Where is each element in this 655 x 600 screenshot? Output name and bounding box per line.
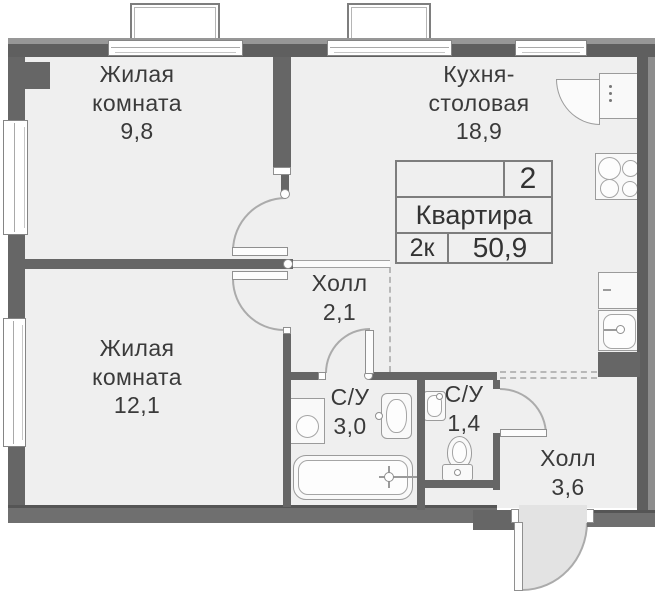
apartment-title: Квартира <box>397 198 551 232</box>
door-jamb <box>511 509 519 523</box>
wall-bottom-right <box>587 510 655 527</box>
total-area: 50,9 <box>449 234 551 262</box>
burner <box>598 157 621 180</box>
burner <box>622 181 638 197</box>
rooms-count: 2 <box>503 162 551 196</box>
wall-bath1-left <box>283 330 291 507</box>
wall-living1-right <box>273 57 291 168</box>
door-leaf <box>232 271 288 280</box>
info-card-empty-cell <box>397 162 503 196</box>
window-left-upper <box>3 120 28 235</box>
room-label-living2: Жилая комната 12,1 <box>52 334 222 420</box>
wall-bath1-top-right <box>369 372 497 380</box>
door-hinge-node <box>280 189 290 199</box>
door-hinge-node <box>283 259 293 269</box>
wall-bath-divider <box>417 372 425 510</box>
door-leaf <box>365 330 374 374</box>
room-area: 1,4 <box>425 409 503 438</box>
room-area: 9,8 <box>52 117 222 146</box>
room-label-hall: Холл 2,1 <box>283 269 396 326</box>
room-name: С/У <box>331 384 370 410</box>
fridge-handle-dot <box>609 99 612 102</box>
fridge-icon <box>599 73 640 119</box>
window-left-lower <box>3 318 26 447</box>
pilaster <box>25 62 50 89</box>
burner <box>600 179 619 198</box>
room-label-bath1: С/У 3,0 <box>310 383 390 440</box>
fridge-handle-dot <box>609 85 612 88</box>
floor-plan: Жилая комната 9,8 Кухня-столовая 18,9 Хо… <box>0 0 655 600</box>
door-jamb <box>273 167 291 175</box>
window-top-left <box>108 40 243 56</box>
bay-window-1 <box>130 3 220 43</box>
zone-divider-dashed <box>500 371 597 373</box>
bathtub-drain <box>384 472 394 482</box>
room-name: Холл <box>312 270 368 296</box>
wall-bath2-bottom <box>425 480 500 488</box>
room-label-bath2: С/У 1,4 <box>425 380 503 437</box>
window-top-right <box>515 40 587 56</box>
info-card-row-area: 2к 50,9 <box>397 232 551 262</box>
door-jamb <box>318 372 326 380</box>
room-area: 3,0 <box>310 412 390 441</box>
door-leaf <box>232 247 288 256</box>
toilet-bowl <box>452 441 467 463</box>
info-card-row-title: Квартира <box>397 196 551 232</box>
layout-code: 2к <box>397 234 449 262</box>
bay-window-2 <box>347 3 431 43</box>
entrance-door-swing <box>522 522 588 591</box>
info-card-row-top: 2 <box>397 162 551 196</box>
zone-divider-dashed <box>500 377 597 379</box>
door-jamb <box>283 327 291 334</box>
room-area: 12,1 <box>52 391 222 420</box>
apartment-info-card: 2 Квартира 2к 50,9 <box>395 160 553 264</box>
wall-rooms-divider <box>8 259 293 269</box>
room-name: Жилая комната <box>92 61 182 116</box>
room-area: 2,1 <box>283 298 396 327</box>
wall-right <box>637 57 655 527</box>
door-jamb <box>586 509 594 523</box>
room-label-entry-hall: Холл 3,6 <box>518 444 618 501</box>
door-leaf <box>500 429 547 437</box>
open-passage-line <box>293 260 390 268</box>
room-area: 3,6 <box>518 473 618 502</box>
room-name: Кухня-столовая <box>429 61 530 116</box>
entrance-opening <box>519 505 587 523</box>
room-area: 18,9 <box>398 117 560 146</box>
stove-icon <box>595 153 640 200</box>
room-name: Жилая комната <box>92 335 182 390</box>
entrance-door-leaf <box>514 522 523 591</box>
room-name: С/У <box>445 381 484 407</box>
window-top-middle <box>327 40 452 56</box>
wall-kitchen-pier <box>598 352 640 377</box>
room-label-kitchen: Кухня-столовая 18,9 <box>398 60 560 146</box>
cabinet-tap-spout <box>603 289 611 291</box>
toilet-button <box>454 469 461 476</box>
fridge-handle-dot <box>609 92 612 95</box>
room-label-living1: Жилая комната 9,8 <box>52 60 222 146</box>
kitchen-sink-faucet-knob <box>616 325 625 334</box>
room-name: Холл <box>540 445 596 471</box>
